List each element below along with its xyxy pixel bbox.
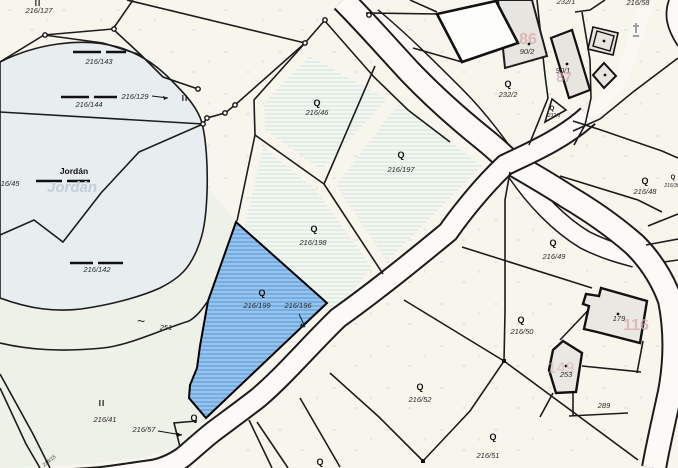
svg-text:Q: Q [190, 413, 197, 423]
svg-text:Q: Q [517, 315, 524, 325]
svg-text:Q: Q [504, 79, 511, 89]
svg-text:Q: Q [316, 457, 323, 467]
svg-text:Q: Q [549, 238, 556, 248]
svg-text:216/45: 216/45 [0, 179, 20, 188]
svg-text:Q: Q [258, 288, 265, 298]
svg-text:216/57: 216/57 [132, 425, 157, 434]
svg-text:116: 116 [623, 317, 649, 334]
svg-text:216/143: 216/143 [84, 57, 113, 66]
svg-text:216/36: 216/36 [663, 183, 678, 189]
svg-text:86: 86 [519, 31, 537, 48]
svg-text:216/46: 216/46 [305, 108, 330, 117]
svg-text:216/58: 216/58 [626, 0, 651, 7]
svg-text:253: 253 [559, 370, 573, 379]
svg-text:90/2: 90/2 [520, 47, 535, 56]
svg-text:216/197: 216/197 [386, 165, 415, 174]
svg-text:216/52: 216/52 [408, 395, 433, 404]
svg-text:216/41: 216/41 [93, 415, 117, 424]
svg-text:Q: Q [641, 176, 648, 186]
svg-text:Q: Q [489, 432, 496, 442]
svg-text:289: 289 [597, 401, 611, 410]
svg-text:87: 87 [556, 69, 572, 85]
svg-text:216/144: 216/144 [74, 100, 102, 109]
svg-text:Q: Q [310, 224, 317, 234]
svg-text:232/2: 232/2 [498, 90, 519, 99]
svg-text:~: ~ [137, 313, 145, 329]
svg-text:216/196: 216/196 [283, 301, 312, 310]
svg-text:216/199: 216/199 [242, 301, 271, 310]
svg-text:II: II [182, 94, 188, 103]
svg-text:216/127: 216/127 [24, 6, 53, 15]
svg-text:232/3: 232/3 [547, 113, 561, 119]
svg-text:216/51: 216/51 [476, 451, 500, 460]
svg-text:Q: Q [671, 175, 676, 181]
svg-text:Q: Q [313, 98, 320, 108]
svg-text:II: II [99, 399, 105, 408]
svg-text:Q: Q [416, 382, 423, 392]
svg-text:Q: Q [397, 150, 404, 160]
svg-text:Jordán: Jordán [47, 179, 97, 196]
svg-text:216/129: 216/129 [120, 92, 149, 101]
svg-text:251: 251 [159, 323, 173, 332]
svg-text:216/198: 216/198 [298, 238, 327, 247]
svg-text:232/1: 232/1 [556, 0, 576, 6]
svg-text:Q: Q [550, 106, 555, 112]
svg-text:179: 179 [613, 314, 626, 323]
svg-text:Jordán: Jordán [60, 166, 88, 176]
svg-text:216/48: 216/48 [633, 187, 658, 196]
svg-text:216/142: 216/142 [82, 265, 111, 274]
svg-text:216/50: 216/50 [510, 327, 535, 336]
svg-text:216/49: 216/49 [542, 252, 567, 261]
